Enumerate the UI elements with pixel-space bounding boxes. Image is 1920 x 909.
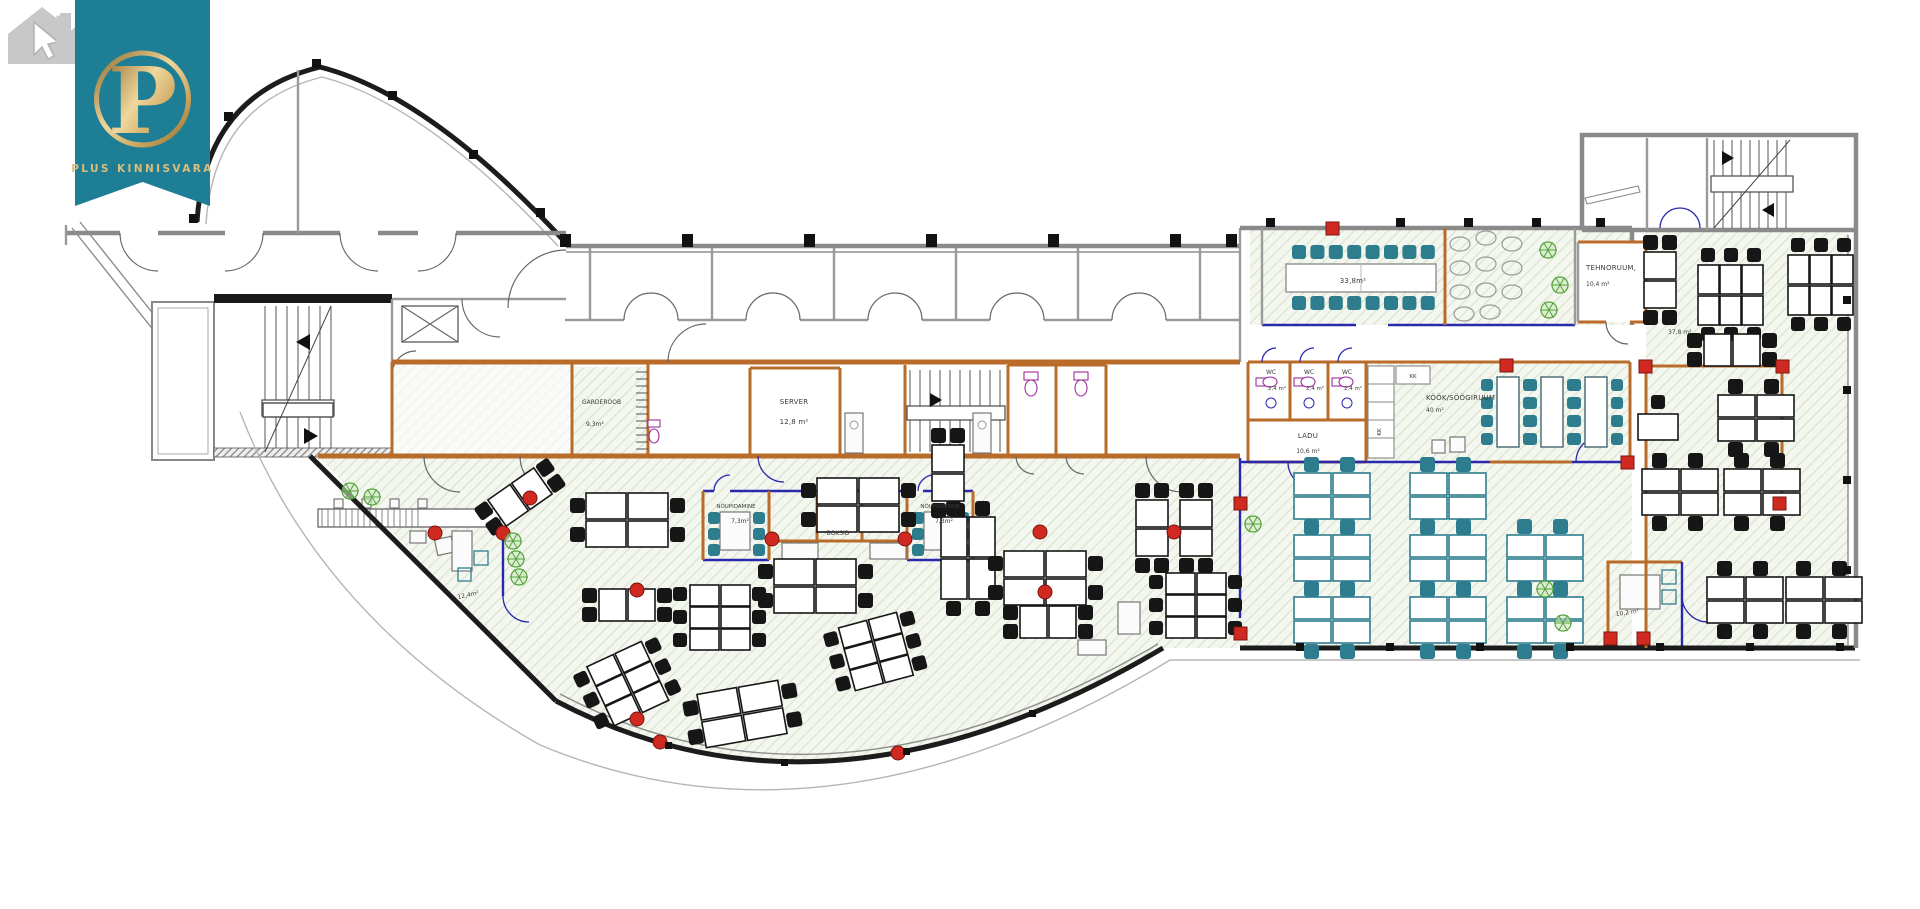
area-kitchen: 40 m² — [1426, 407, 1444, 414]
brand-ribbon: P PLUS KINNISVARA — [71, 0, 214, 206]
mullion — [665, 742, 672, 749]
mullion — [1532, 218, 1541, 227]
mullion — [1396, 218, 1405, 227]
mullion — [1464, 218, 1473, 227]
label-ladu: LADU — [1298, 432, 1318, 440]
square-column — [1326, 222, 1339, 235]
mullion — [469, 150, 478, 159]
logo-monogram: P — [108, 47, 177, 155]
mullion — [312, 59, 321, 68]
plant — [1554, 615, 1572, 631]
label-tehnoruum: TEHNORUUM, — [1585, 264, 1636, 272]
mullion — [1029, 710, 1036, 717]
area-open-right: 37,8 m² — [1668, 329, 1692, 336]
mullion — [536, 208, 545, 217]
plant — [1540, 302, 1558, 318]
column — [1048, 234, 1059, 247]
mullion — [1386, 643, 1394, 651]
mullion — [1266, 218, 1275, 227]
door-arc — [895, 293, 922, 320]
plant — [510, 569, 528, 585]
mullion — [1656, 643, 1664, 651]
column — [560, 234, 571, 247]
door-arc — [990, 293, 1017, 320]
label-server: SERVER — [780, 398, 809, 406]
mullion — [1596, 218, 1605, 227]
label-kitchen: KÖÖK/SÖÖGIRUUM — [1426, 393, 1495, 402]
mullion — [1476, 643, 1484, 651]
square-column — [1234, 627, 1247, 640]
plant — [1536, 581, 1554, 597]
door-arc — [1017, 293, 1044, 320]
plant — [1539, 242, 1557, 258]
plant — [1244, 516, 1262, 532]
label-kk-counter: KK — [1409, 374, 1417, 380]
door-arc — [773, 293, 800, 320]
column — [926, 234, 937, 247]
area-wc1: 2,4 m² — [1268, 385, 1286, 392]
desk-cluster — [1788, 238, 1853, 331]
label-meeting-right: NÕUPIDAMINE — [920, 503, 960, 510]
plant — [1551, 277, 1569, 293]
area-server: 12,8 m² — [780, 418, 809, 426]
mullion — [903, 748, 910, 755]
round-column — [428, 526, 442, 540]
column — [682, 234, 693, 247]
mullion — [1746, 643, 1754, 651]
left-stairwell — [152, 294, 416, 460]
label-meeting-left: NÕUPIDAMINE — [716, 503, 756, 510]
square-column — [1500, 359, 1513, 372]
mullion — [1566, 643, 1574, 651]
label-wc1: WC — [1266, 369, 1276, 376]
area-wc3: 2,4 m² — [1344, 385, 1362, 392]
desk-cluster — [1698, 248, 1763, 341]
mullion — [1296, 643, 1304, 651]
round-column — [1033, 525, 1047, 539]
square-column — [1776, 360, 1789, 373]
mullion — [1843, 566, 1851, 574]
desk-cluster — [673, 585, 766, 650]
mullion — [1843, 296, 1851, 304]
area-garderoob: 9,3m² — [586, 421, 604, 428]
label-boksid: BOKSID — [827, 530, 850, 537]
plant — [504, 533, 522, 549]
area-tehnoruum: 10,4 m² — [1586, 281, 1610, 288]
square-column — [1234, 497, 1247, 510]
column — [1226, 234, 1237, 247]
brand-name: PLUS KINNISVARA — [71, 163, 214, 175]
plant — [507, 551, 525, 567]
door-arc — [651, 293, 678, 320]
plant — [363, 489, 381, 505]
floor-plan-image: K — [0, 0, 1920, 909]
square-column — [1637, 632, 1650, 645]
area-meeting-right: 7,3m² — [935, 518, 953, 525]
square-column — [1639, 360, 1652, 373]
round-column — [891, 746, 905, 760]
round-column — [630, 583, 644, 597]
column — [1170, 234, 1181, 247]
plant — [341, 483, 359, 499]
area-wc2: 2,4 m² — [1306, 385, 1324, 392]
label-kk-vertical: KK — [1377, 428, 1383, 436]
column — [804, 234, 815, 247]
door-arc — [1112, 293, 1139, 320]
mullion — [781, 759, 788, 766]
round-column — [898, 532, 912, 546]
mullion — [189, 214, 198, 223]
mullion — [1843, 386, 1851, 394]
door-arc — [1139, 293, 1166, 320]
mullion — [224, 112, 233, 121]
square-column — [1621, 456, 1634, 469]
mullion — [1836, 643, 1844, 651]
round-column — [630, 712, 644, 726]
round-column — [523, 491, 537, 505]
round-column — [1167, 525, 1181, 539]
round-column — [1038, 585, 1052, 599]
top-cells — [565, 228, 1240, 362]
label-garderoob: GARDEROOB — [582, 399, 621, 406]
area-conference: 33,8m² — [1340, 277, 1366, 285]
door-arc — [746, 293, 773, 320]
square-column — [1604, 632, 1617, 645]
mullion — [1843, 476, 1851, 484]
door-arc — [868, 293, 895, 320]
area-ladu: 10,6 m² — [1296, 448, 1320, 455]
area-meeting-left: 7,3m² — [731, 518, 749, 525]
label-wc3: WC — [1342, 369, 1352, 376]
desk-cluster — [1149, 573, 1242, 638]
round-column — [765, 532, 779, 546]
door-arc — [624, 293, 651, 320]
mullion — [388, 91, 397, 100]
square-column — [1773, 497, 1786, 510]
round-column — [653, 735, 667, 749]
label-wc2: WC — [1304, 369, 1314, 376]
